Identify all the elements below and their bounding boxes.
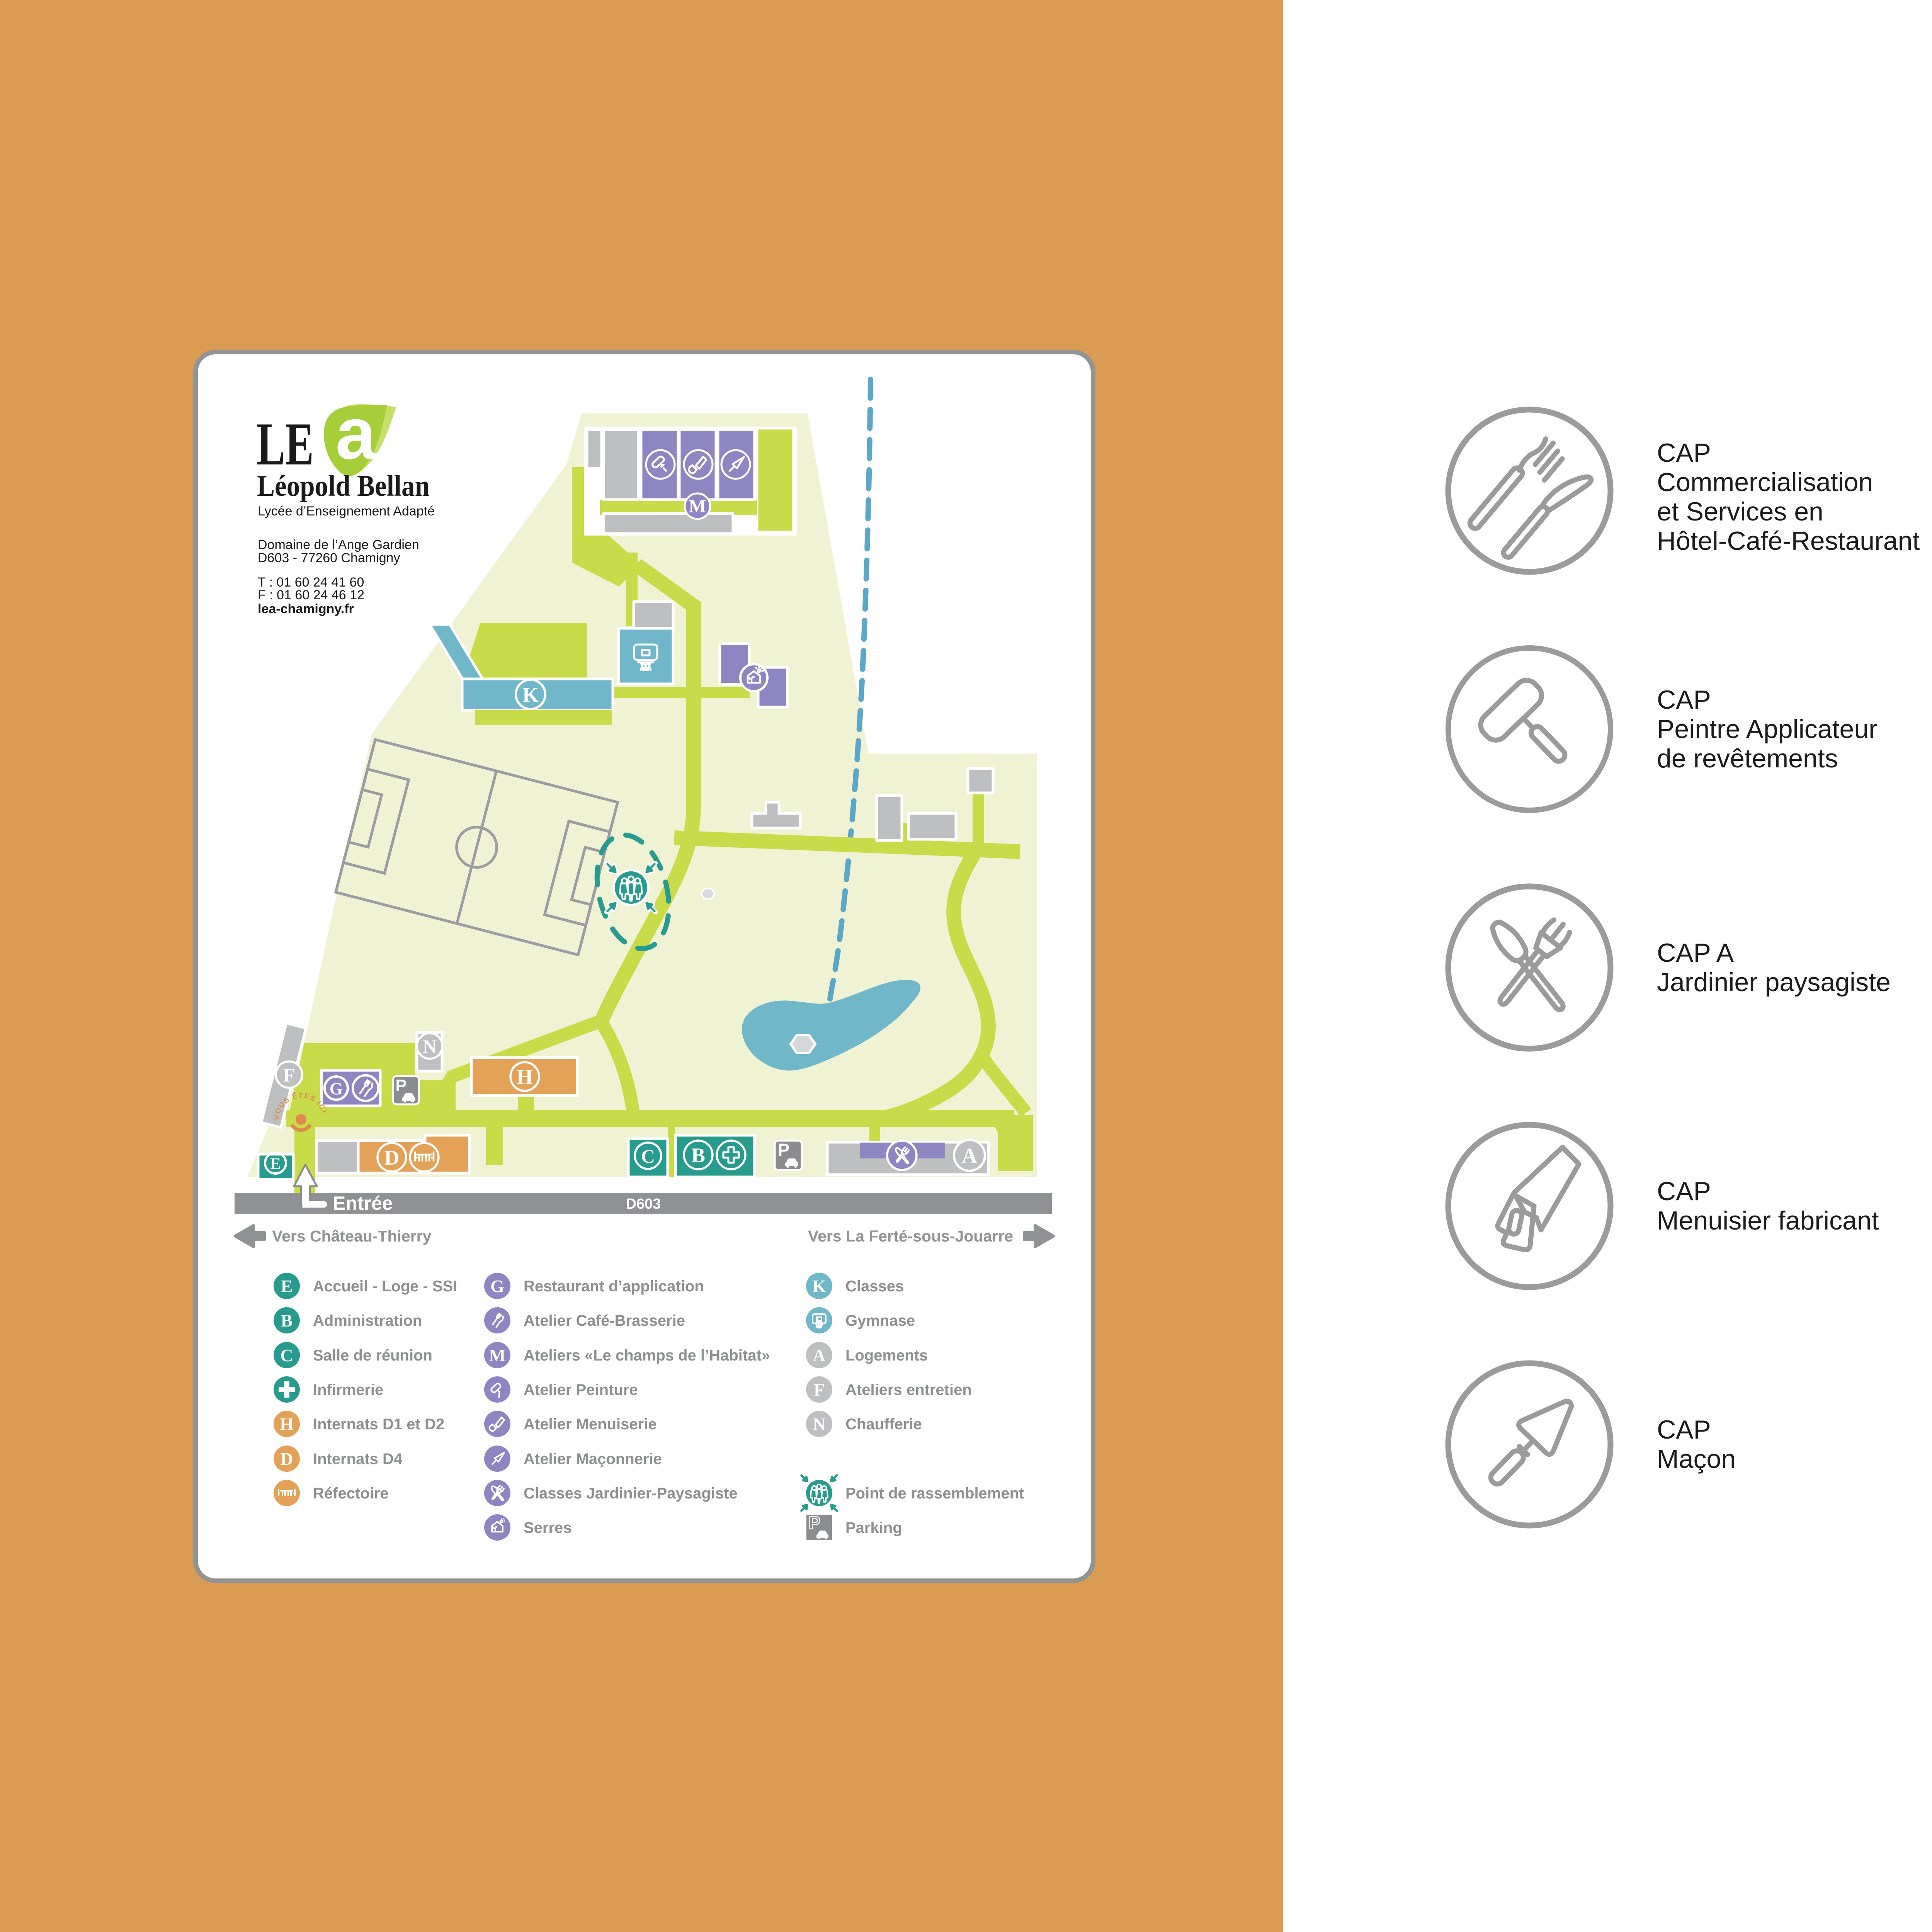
svg-text:K: K [522,683,539,706]
svg-text:Infirmerie: Infirmerie [313,1381,383,1398]
svg-text:M: M [489,1345,505,1365]
svg-text:Point de rassemblement: Point de rassemblement [845,1485,1024,1502]
svg-text:Accueil - Loge - SSI: Accueil - Loge - SSI [313,1278,457,1295]
svg-text:Lycée d’Enseignement Adapté: Lycée d’Enseignement Adapté [258,504,435,519]
svg-text:Chaufferie: Chaufferie [845,1416,922,1433]
svg-text:Ateliers entretien: Ateliers entretien [845,1381,972,1398]
svg-text:Salle de réunion: Salle de réunion [313,1347,432,1364]
svg-text:Vers La Ferté-sous-Jouarre: Vers La Ferté-sous-Jouarre [808,1227,1013,1245]
svg-text:N: N [813,1414,825,1434]
svg-text:D603: D603 [626,1196,661,1212]
svg-text:P: P [809,1513,821,1533]
svg-text:Vers Château-Thierry: Vers Château-Thierry [272,1227,432,1245]
svg-text:Atelier Menuiserie: Atelier Menuiserie [524,1416,657,1433]
svg-text:Serres: Serres [524,1519,572,1536]
svg-text:Domaine de l’Ange Gardien: Domaine de l’Ange Gardien [258,537,419,552]
svg-text:Léopold Bellan: Léopold Bellan [257,469,430,502]
svg-text:A: A [813,1345,825,1365]
svg-text:Internats D4: Internats D4 [313,1451,403,1468]
svg-text:C: C [641,1145,655,1167]
svg-text:D: D [280,1449,293,1469]
svg-text:F : 01 60 24 46 12: F : 01 60 24 46 12 [258,588,364,602]
svg-text:G: G [490,1276,504,1296]
svg-text:P: P [395,1076,406,1095]
svg-text:H: H [517,1065,533,1088]
svg-text:E: E [270,1155,281,1173]
svg-text:D603 - 77260 Chamigny: D603 - 77260 Chamigny [258,551,400,565]
svg-text:a: a [335,393,377,474]
svg-text:Parking: Parking [845,1519,902,1536]
svg-text:Internats D1 et D2: Internats D1 et D2 [313,1416,444,1433]
svg-text:LE: LE [257,410,314,478]
svg-text:A: A [962,1144,978,1168]
svg-text:Classes Jardinier-Paysagiste: Classes Jardinier-Paysagiste [524,1485,738,1502]
svg-text:Atelier Maçonnerie: Atelier Maçonnerie [524,1451,662,1468]
svg-text:F: F [814,1380,825,1400]
svg-text:K: K [812,1276,826,1296]
svg-text:lea-chamigny.fr: lea-chamigny.fr [258,602,354,616]
svg-text:Réfectoire: Réfectoire [313,1485,389,1502]
svg-text:D: D [384,1146,400,1169]
svg-text:Atelier Café-Brasserie: Atelier Café-Brasserie [524,1312,685,1329]
svg-text:G: G [330,1079,343,1098]
svg-text:Gymnase: Gymnase [845,1312,915,1329]
svg-text:F: F [283,1064,295,1086]
svg-text:P: P [778,1140,790,1160]
svg-text:B: B [691,1144,705,1167]
svg-text:Restaurant d’application: Restaurant d’application [524,1278,704,1295]
svg-text:Logements: Logements [845,1347,928,1364]
svg-text:B: B [281,1311,293,1330]
svg-text:E: E [281,1276,293,1296]
svg-text:N: N [423,1036,437,1057]
svg-text:Ateliers «Le champs de l’Habit: Ateliers «Le champs de l’Habitat» [524,1347,770,1364]
svg-text:C: C [280,1345,293,1365]
svg-text:Entrée: Entrée [333,1192,393,1214]
svg-text:Administration: Administration [313,1312,422,1329]
svg-text:Classes: Classes [845,1278,904,1295]
svg-text:H: H [280,1414,294,1434]
svg-text:Atelier Peinture: Atelier Peinture [524,1381,638,1398]
svg-text:M: M [689,496,706,517]
